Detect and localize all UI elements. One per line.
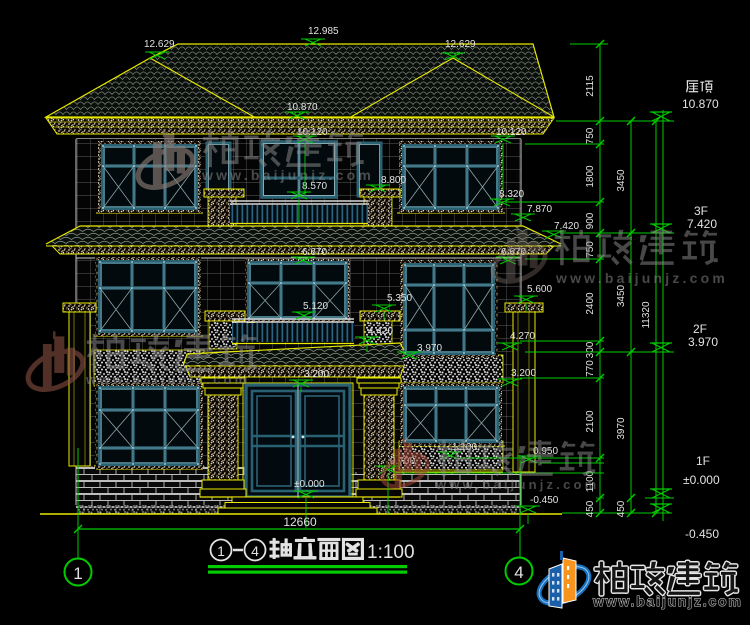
svg-text:4: 4 <box>514 563 523 582</box>
svg-text:2115: 2115 <box>585 75 596 97</box>
svg-text:2400: 2400 <box>585 292 596 315</box>
svg-text:www.baijunjz.com: www.baijunjz.com <box>85 372 249 387</box>
svg-text:7.870: 7.870 <box>527 204 552 215</box>
svg-text:www.baijunjz.com: www.baijunjz.com <box>435 477 599 492</box>
svg-text:12.629: 12.629 <box>144 39 175 50</box>
svg-text:300: 300 <box>585 341 596 358</box>
svg-text:10.870: 10.870 <box>682 97 719 111</box>
svg-text:750: 750 <box>585 127 596 144</box>
svg-text:11320: 11320 <box>641 301 652 329</box>
svg-text:7.420: 7.420 <box>554 221 579 232</box>
svg-text:4.420: 4.420 <box>368 326 393 337</box>
svg-text:3.200: 3.200 <box>511 368 536 379</box>
svg-text:1:100: 1:100 <box>367 542 415 563</box>
svg-text:450: 450 <box>585 500 596 517</box>
svg-text:±0.000: ±0.000 <box>294 479 325 490</box>
svg-text:www.baijunjz.com: www.baijunjz.com <box>592 593 743 609</box>
svg-text:900: 900 <box>585 212 596 229</box>
svg-text:1: 1 <box>217 543 225 559</box>
svg-text:1800: 1800 <box>585 165 596 188</box>
svg-text:4.270: 4.270 <box>510 331 535 342</box>
svg-text:10.870: 10.870 <box>287 102 318 113</box>
svg-text:3F: 3F <box>694 204 708 218</box>
svg-text:6.670: 6.670 <box>302 247 327 258</box>
svg-text:3970: 3970 <box>616 417 627 440</box>
svg-text:12.985: 12.985 <box>308 26 339 37</box>
svg-text:1: 1 <box>73 564 82 583</box>
svg-text:3450: 3450 <box>616 284 627 307</box>
svg-text:5.600: 5.600 <box>527 284 552 295</box>
svg-text:www.baijunjz.com: www.baijunjz.com <box>201 167 374 183</box>
svg-text:3.970: 3.970 <box>688 335 718 349</box>
svg-text:450: 450 <box>616 500 627 517</box>
svg-text:±0.000: ±0.000 <box>683 473 720 487</box>
svg-text:5.350: 5.350 <box>387 293 412 304</box>
svg-text:3450: 3450 <box>616 169 627 192</box>
svg-text:-0.450: -0.450 <box>685 527 719 541</box>
svg-text:8.320: 8.320 <box>499 189 524 200</box>
svg-text:-0.450: -0.450 <box>530 495 559 506</box>
svg-text:5.120: 5.120 <box>303 301 328 312</box>
svg-text:1F: 1F <box>696 454 710 468</box>
svg-text:2F: 2F <box>693 322 707 336</box>
svg-text:3.200: 3.200 <box>304 369 329 380</box>
svg-text:12660: 12660 <box>283 515 317 529</box>
svg-text:770: 770 <box>585 360 596 377</box>
svg-text:12.629: 12.629 <box>445 39 476 50</box>
svg-text:7.420: 7.420 <box>687 217 717 231</box>
svg-text:4: 4 <box>251 543 259 559</box>
svg-text:2100: 2100 <box>585 410 596 433</box>
svg-text:www.baijunjz.com: www.baijunjz.com <box>555 270 728 286</box>
svg-text:8.800: 8.800 <box>381 175 406 186</box>
